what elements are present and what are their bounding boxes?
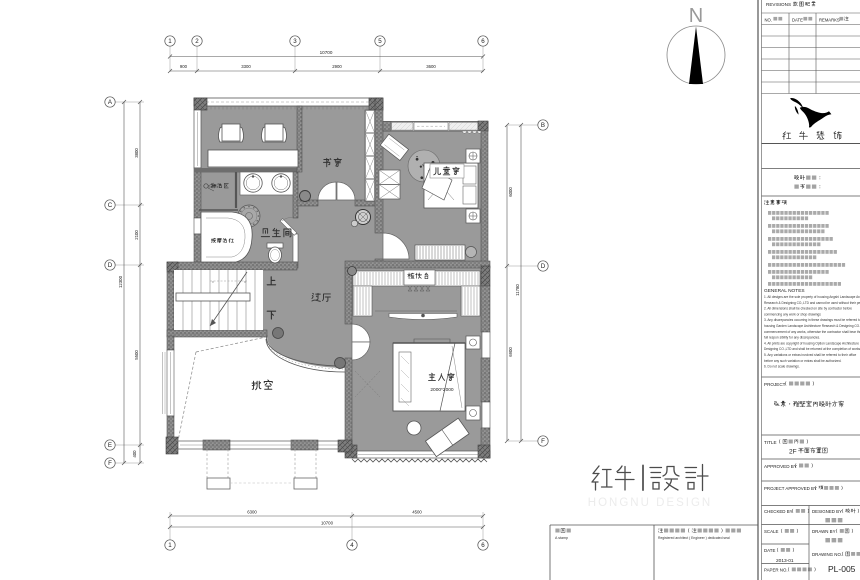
- svg-text:REMARKS: REMARKS: [819, 17, 840, 22]
- svg-text:3800: 3800: [134, 148, 139, 158]
- svg-text:CHECKED BY: CHECKED BY: [764, 509, 793, 514]
- svg-text:A stamp: A stamp: [555, 536, 568, 540]
- svg-text:GENERAL NOTES: GENERAL NOTES: [764, 288, 805, 294]
- svg-text:2000*2000: 2000*2000: [430, 387, 454, 393]
- svg-text:11780: 11780: [515, 284, 520, 296]
- svg-text:DRAWING NO.: DRAWING NO.: [812, 552, 842, 557]
- svg-text:SCALE: SCALE: [764, 529, 778, 534]
- svg-text:F: F: [541, 438, 545, 445]
- svg-text:N: N: [689, 5, 703, 27]
- svg-text:10700: 10700: [320, 50, 333, 55]
- svg-text:commencement of any works, oth: commencement of any works, otherwise the…: [764, 330, 860, 334]
- svg-text:2013-01: 2013-01: [776, 558, 794, 564]
- svg-text:APPROVED BY: APPROVED BY: [764, 464, 797, 469]
- svg-text:2F: 2F: [789, 449, 797, 456]
- svg-text:HONGNU DESIGN: HONGNU DESIGN: [588, 497, 712, 509]
- svg-text:1: 1: [168, 542, 172, 549]
- svg-text:C: C: [108, 202, 113, 209]
- svg-text:3300: 3300: [241, 64, 251, 69]
- svg-text:Research & Designing CO.,LTD a: Research & Designing CO.,LTD and cannot …: [764, 301, 860, 305]
- svg-text:Designing CO.,LTD and shall b: Designing CO.,LTD and shall be returned …: [764, 347, 860, 351]
- svg-text:12300: 12300: [118, 275, 123, 288]
- svg-text:REVISIONS: REVISIONS: [766, 2, 791, 7]
- svg-text:5: 5: [378, 38, 382, 45]
- svg-text:4: 4: [350, 542, 354, 549]
- svg-text:6: 6: [481, 38, 485, 45]
- svg-text:TITLE: TITLE: [764, 440, 777, 445]
- svg-text:D: D: [108, 262, 113, 269]
- svg-text:before any such variation or e: before any such variation or extras shal…: [764, 359, 842, 363]
- svg-text:PROJECT: PROJECT: [764, 382, 786, 387]
- svg-text:4500: 4500: [412, 510, 422, 515]
- svg-text:PL-005: PL-005: [828, 564, 856, 574]
- svg-text:1. All designs are the sole pr: 1. All designs are the sole property of …: [764, 295, 860, 299]
- svg-text:6000: 6000: [508, 187, 513, 197]
- svg-text:F: F: [108, 460, 112, 467]
- svg-text:full respon sibility for any: full respon sibility for any discrepanci…: [764, 336, 820, 340]
- svg-text:DATE: DATE: [792, 17, 803, 22]
- svg-text:D: D: [541, 263, 546, 270]
- svg-text:PAPER NO.: PAPER NO.: [764, 568, 788, 573]
- svg-text:E: E: [108, 442, 112, 449]
- svg-text:10700: 10700: [321, 521, 334, 526]
- svg-text:2. All dimensions shall be che: 2. All dimensions shall be checked on si…: [764, 307, 852, 311]
- svg-text:2900: 2900: [332, 64, 342, 69]
- svg-text:3600: 3600: [426, 64, 436, 69]
- svg-text:4. All prints are copyright of: 4. All prints are copyright of housing O…: [764, 341, 860, 345]
- svg-text:2100: 2100: [134, 230, 139, 240]
- svg-text:DATE: DATE: [764, 548, 775, 553]
- svg-text:6: 6: [481, 542, 485, 549]
- svg-text:x: x: [212, 280, 214, 284]
- svg-text:Registered architect ( Enginee: Registered architect ( Engineer ) dedica…: [658, 536, 730, 540]
- svg-text:5500: 5500: [134, 350, 139, 360]
- svg-text:PROJECT APPROVED BY: PROJECT APPROVED BY: [764, 486, 817, 491]
- svg-text:housing Garden Landscape Archi: housing Garden Landscape Architecture Re…: [764, 324, 860, 328]
- svg-text:commencing any work or shop dr: commencing any work or shop drawings: [764, 312, 821, 316]
- svg-text:x: x: [244, 280, 246, 284]
- svg-text:400: 400: [132, 450, 137, 458]
- svg-text:3. Any discrepancies occurring: 3. Any discrepancies occurring in these …: [764, 318, 860, 322]
- svg-text:900: 900: [180, 64, 188, 69]
- svg-text:B: B: [541, 122, 545, 129]
- svg-text:NO.: NO.: [765, 17, 772, 22]
- svg-text:1: 1: [168, 38, 172, 45]
- svg-text:DESIGNED BY: DESIGNED BY: [812, 509, 842, 514]
- svg-text:5. Any variations or extras in: 5. Any variations or extras involved sha…: [764, 353, 856, 357]
- svg-text:2: 2: [195, 38, 199, 45]
- svg-text:3: 3: [293, 38, 297, 45]
- svg-text:DRAWN BY: DRAWN BY: [812, 529, 836, 534]
- svg-text:6300: 6300: [247, 510, 257, 515]
- svg-text:6. Do not scale drawings.: 6. Do not scale drawings.: [764, 365, 800, 369]
- svg-text:6900: 6900: [508, 347, 513, 357]
